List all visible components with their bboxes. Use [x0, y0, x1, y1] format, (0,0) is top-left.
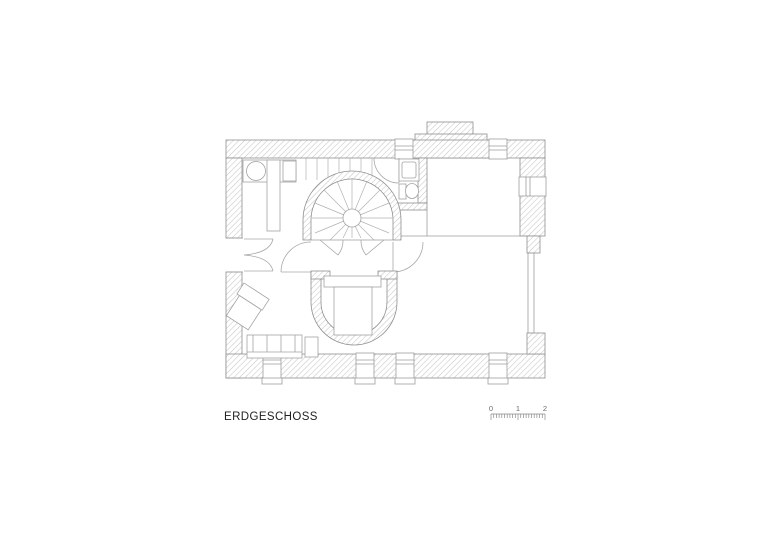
- east-wall-upper: [520, 158, 545, 236]
- scale-label-2: 2: [543, 404, 547, 413]
- scale-bar: 0 1 2: [489, 404, 547, 420]
- window-north-2: [489, 139, 507, 159]
- kitchen-counter: [243, 160, 296, 231]
- side-table: [305, 337, 318, 357]
- kitchen-cabinet: [283, 161, 296, 181]
- spiral-staircase: [303, 171, 401, 255]
- entrance-double-door: [225, 238, 273, 272]
- oval-room-bench: [324, 276, 381, 287]
- east-wall-corner: [527, 333, 545, 354]
- spiral-newel-post: [343, 209, 361, 227]
- west-wall-upper: [226, 158, 242, 238]
- vestibule-east-door: [393, 242, 423, 272]
- spiral-entry-doors: [320, 240, 384, 255]
- bathroom-sink: [399, 159, 419, 181]
- floor-plan-drawing: 0 1 2: [0, 0, 780, 551]
- window-north-1: [395, 139, 413, 159]
- window-south-4: [488, 353, 508, 384]
- bathroom: [374, 158, 419, 199]
- scale-label-1: 1: [516, 404, 520, 413]
- sofa: [247, 335, 302, 358]
- scale-label-0: 0: [489, 404, 493, 413]
- east-glazing-wall: [528, 253, 534, 333]
- vestibule-west-door: [281, 242, 311, 272]
- drawing-sheet: 0 1 2 ERDGESCHOSS: [0, 0, 780, 551]
- kitchen-island: [267, 160, 280, 231]
- east-wall-step: [527, 236, 540, 253]
- window-east: [519, 177, 546, 196]
- floor-plan-title: ERDGESCHOSS: [224, 411, 318, 423]
- oval-room: [311, 271, 397, 345]
- window-south-2: [355, 353, 375, 384]
- oval-room-table: [334, 287, 372, 335]
- scale-ruler-ticks: [491, 414, 545, 420]
- window-south-3: [395, 353, 415, 384]
- bathroom-toilet: [399, 184, 419, 200]
